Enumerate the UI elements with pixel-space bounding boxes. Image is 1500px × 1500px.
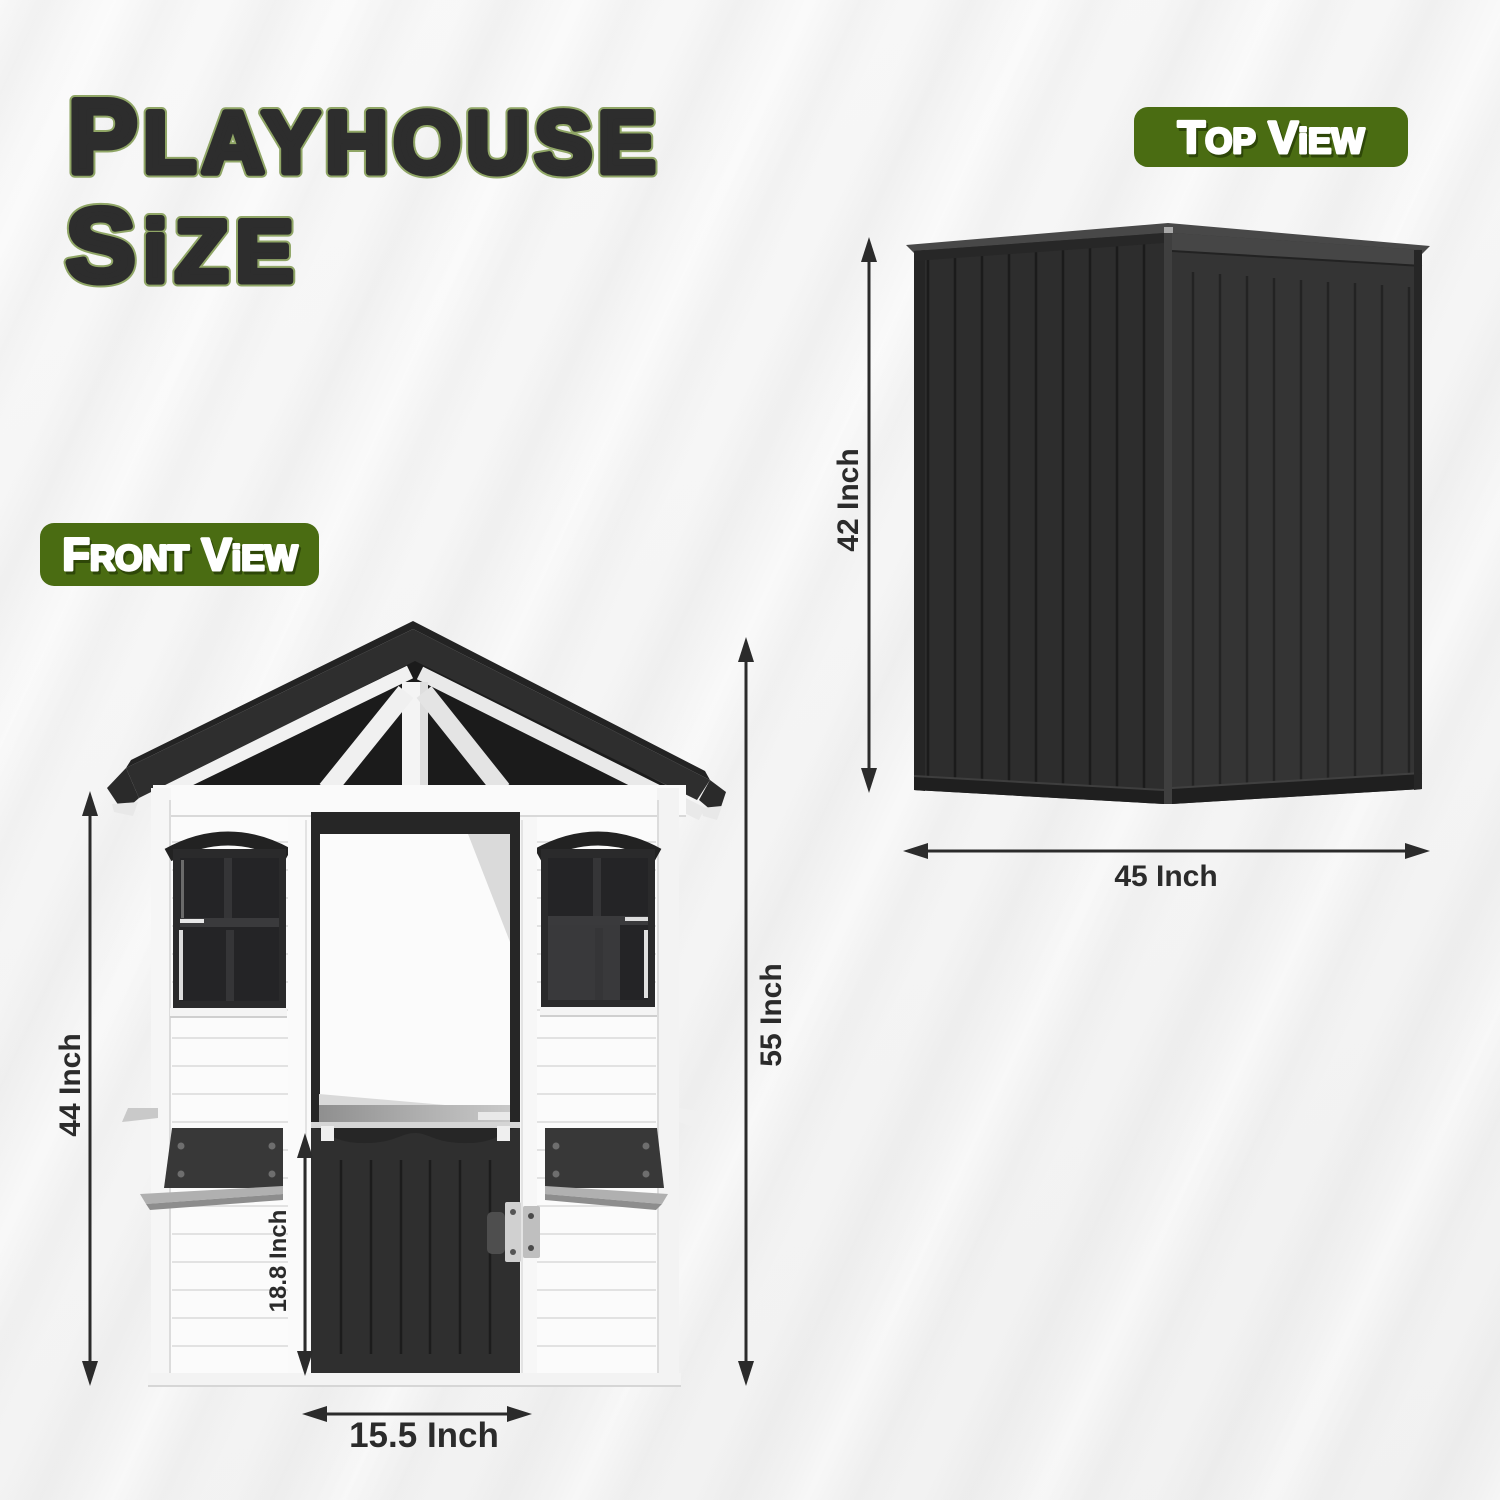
- svg-text:42 Inch: 42 Inch: [832, 448, 865, 551]
- svg-text:45 Inch: 45 Inch: [1114, 860, 1217, 893]
- svg-text:PLAYHOUSE: PLAYHOUSE: [68, 79, 661, 195]
- svg-text:44 Inch: 44 Inch: [54, 1033, 87, 1136]
- svg-text:55 Inch: 55 Inch: [755, 963, 788, 1066]
- svg-text:SiZE: SiZE: [66, 188, 301, 304]
- svg-text:15.5 Inch: 15.5 Inch: [349, 1416, 499, 1455]
- svg-text:18.8 Inch: 18.8 Inch: [265, 1210, 292, 1313]
